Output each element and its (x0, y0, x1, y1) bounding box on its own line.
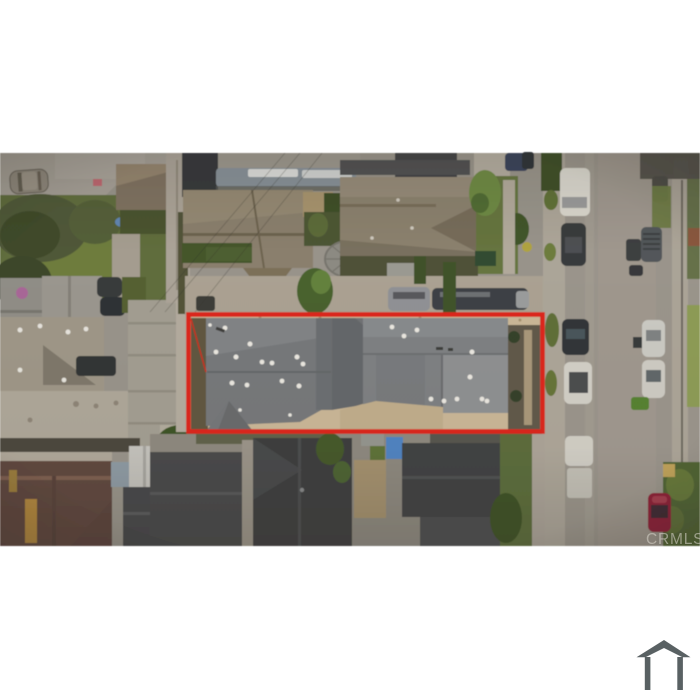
svg-text:CRMLS: CRMLS (646, 531, 700, 548)
